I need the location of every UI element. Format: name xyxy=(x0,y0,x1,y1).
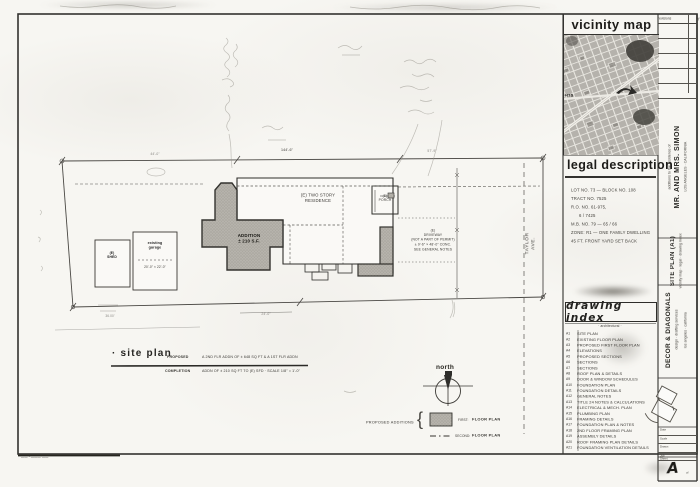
sheet-name: EXISTING FLOOR PLAN xyxy=(577,337,623,342)
sheet-number: A21 xyxy=(566,446,577,450)
revision-row xyxy=(658,24,697,39)
sheet-number: A19 xyxy=(566,435,577,439)
dimension-bottom: 24'-0" xyxy=(241,312,291,316)
legal-description-lines: LOT NO. 73 — BLOCK NO. 108TRACT NO. 7525… xyxy=(571,186,659,246)
garage-label: existing garage xyxy=(128,241,182,250)
firm-line1: design · drafting services xyxy=(674,310,678,350)
revision-row xyxy=(658,54,697,69)
sheet-name: GENERAL NOTES xyxy=(577,394,611,399)
sheet-number: A10 xyxy=(566,383,577,387)
legend-heading: PROPOSED ADDITIONS xyxy=(366,420,414,425)
revisions-table: revisions by xyxy=(658,14,697,93)
revision-row xyxy=(658,39,697,54)
titleblock-field-row: Scale xyxy=(658,436,697,445)
legal-line: R.O. NO. 61-975, xyxy=(571,203,659,212)
sheet-number: A9 xyxy=(566,378,577,382)
legend-brace: { xyxy=(417,409,423,430)
sheet-name: FOUNDATION VENTILATION DETAILS xyxy=(577,446,649,451)
drawing-index-row: A21 FOUNDATION VENTILATION DETAILS xyxy=(566,445,657,451)
revisions-label: revisions xyxy=(658,17,671,21)
sheet-number: A13 xyxy=(566,400,577,404)
drawing-index-row: A13 TITLE 24 NOTES & CALCULATIONS xyxy=(566,399,657,405)
vicinity-map-title: vicinity map xyxy=(564,14,659,35)
footer-fineprint: —— · ——— —— xyxy=(21,455,48,459)
revisions-header: revisions by xyxy=(658,14,697,24)
legal-line: ZONE: R1 — ONE FAMILY DWELLING xyxy=(571,229,659,238)
dimension-left: 44'-0" xyxy=(130,152,180,156)
sheet-name: PROPOSED SECTIONS xyxy=(577,354,622,359)
vicinity-map-image xyxy=(564,35,659,155)
project-subtext: additions to the residence of xyxy=(667,144,671,189)
sheet-number: A15 xyxy=(566,412,577,416)
sheet-number: A7 xyxy=(566,366,577,370)
sheet-number: A12 xyxy=(566,395,577,399)
sheet-of-label: of xyxy=(686,471,688,474)
revisions-divider xyxy=(688,14,689,93)
sheet-number: A3 xyxy=(566,343,577,347)
legend-first-value: FLOOR PLAN xyxy=(472,417,501,422)
sheet-name: ROOF PLAN & DETAILS xyxy=(577,371,622,376)
sheet-number-box: Sheet A of xyxy=(658,457,697,481)
sheet-name: ELEVATIONS xyxy=(577,349,602,354)
proposed-label: PROPOSED xyxy=(167,355,188,360)
sheet-name: SECTIONS xyxy=(577,366,598,371)
sheet-name: TITLE 24 NOTES & CALCULATIONS xyxy=(577,400,645,405)
north-arrow xyxy=(423,371,473,406)
sheet-number: A5 xyxy=(566,355,577,359)
site-plan-title: · site plan xyxy=(112,348,172,359)
shed-label: (E) SHED xyxy=(87,251,137,260)
street-name-label: TAYLOR AVE. xyxy=(524,227,536,260)
sheet-name: FOUNDATION PLAN xyxy=(577,383,615,388)
addition-label: ADDITION ± 210 S.F. xyxy=(216,233,282,244)
revisions-by-label: by xyxy=(696,17,699,21)
sheet-number: A14 xyxy=(566,406,577,410)
title-rule xyxy=(111,366,308,367)
field-label: Scale xyxy=(660,437,667,440)
sheet-name: ELECTRICAL & MECH. PLAN xyxy=(577,406,632,411)
legend-swatches xyxy=(430,413,452,436)
firm-line2: los angeles · california xyxy=(683,312,687,348)
proposed-note: A 2ND FLR ADDN OF ± 648 SQ FT & A 1ST FL… xyxy=(202,355,298,360)
drawing-index-title: drawing index xyxy=(565,302,657,322)
sheet-number: A20 xyxy=(566,440,577,444)
garage-sub-label: 20'-0" × 22'-0" xyxy=(131,265,179,269)
titleblock-field-row: Drawn xyxy=(658,444,697,453)
sheet-name: SITE PLAN xyxy=(577,332,598,337)
legend-second-key: SECOND: xyxy=(455,434,470,438)
project-name: MR. AND MRS. SIMON xyxy=(674,125,681,208)
completion-label: COMPLETION xyxy=(165,369,190,374)
legend-second-value: FLOOR PLAN xyxy=(472,433,501,438)
titleblock-fields: Date Scale Drawn Job xyxy=(658,427,697,461)
legal-line: 45 FT. FRONT YARD SET BACK xyxy=(571,237,659,246)
vicinity-map-graphic xyxy=(564,35,659,155)
sheet-number: A17 xyxy=(566,423,577,427)
sheet-number: A16 xyxy=(566,418,577,422)
drawing-index-subtitle: · architectural · xyxy=(586,324,634,328)
titleblock-field-row: Date xyxy=(658,427,697,436)
legal-line: LOT NO. 73 — BLOCK NO. 108 xyxy=(571,186,659,195)
completion-note: ADDN OF ± 210 SQ FT TO (E) SFD · SCALE 1… xyxy=(202,369,300,374)
project-block: additions to the residence of MR. AND MR… xyxy=(660,97,694,237)
sheet-name: ASSEMBLY DETAILS xyxy=(577,434,616,439)
sheet-number: A2 xyxy=(566,338,577,342)
sheet-number: A6 xyxy=(566,361,577,365)
field-label: Drawn xyxy=(660,445,668,448)
porch-label: (E) PORCH xyxy=(360,194,410,203)
sheet-name: FOUNDATION PLAN & NOTES xyxy=(577,423,634,428)
dimension-top: 144'-6" xyxy=(260,148,314,153)
sheet-number: A11 xyxy=(566,389,577,393)
curb-dimension: 36.00' xyxy=(86,314,134,318)
sheet-name: PROPOSED FIRST FLOOR PLAN xyxy=(577,343,640,348)
legend-first-key: FIRST: xyxy=(458,418,469,422)
vicinity-map-panel: vicinity map xyxy=(563,14,659,155)
map-label-hts: HTS xyxy=(565,93,573,98)
sheet-number: A18 xyxy=(566,429,577,433)
legal-line: 6 / 7425 xyxy=(571,212,659,221)
legal-description-title: legal description xyxy=(567,158,673,172)
sheet-name: FOUNDATION DETAILS xyxy=(577,389,621,394)
firm-name: DECOR & DIAGONALS xyxy=(665,292,672,368)
drawing-sheet: vicinity map xyxy=(0,0,700,487)
driveway-note: (E) DRIVEWAY (NOT A PART OF PERMIT) ± 9'… xyxy=(408,228,458,251)
legal-line: M.B. NO. 79 — 65 / 66 xyxy=(571,220,659,229)
sheet-name: ROOF FRAMING PLAN DETAILS xyxy=(577,440,638,445)
north-label: north xyxy=(436,364,454,371)
sheet-name: 2ND FLOOR FRAMING PLAN xyxy=(577,428,632,433)
firm-block: DECOR & DIAGONALS design · drafting serv… xyxy=(664,265,690,395)
project-address: LOS ANGELES · CALIFORNIA xyxy=(683,142,687,192)
dimension-right: 57'-9" xyxy=(407,149,457,153)
revision-row xyxy=(658,69,697,84)
sheet-number: A8 xyxy=(566,372,577,376)
sheet-letter: A xyxy=(667,459,680,478)
legal-line: TRACT NO. 7525 xyxy=(571,195,659,204)
sheet-name: DOOR & WINDOW SCHEDULES xyxy=(577,377,638,382)
field-label: Date xyxy=(660,428,666,431)
sheet-number: A4 xyxy=(566,349,577,353)
drawing-index-rows: A1 SITE PLAN A2 EXISTING FLOOR PLAN A3 P… xyxy=(566,331,657,451)
sheet-name: SECTIONS xyxy=(577,360,598,365)
sheet-name: PLUMBING PLAN xyxy=(577,411,610,416)
sheet-number: A1 xyxy=(566,332,577,336)
house-label: (E) TWO STORY RESIDENCE xyxy=(286,193,350,204)
sheet-name: FRAMING DETAILS xyxy=(577,417,614,422)
